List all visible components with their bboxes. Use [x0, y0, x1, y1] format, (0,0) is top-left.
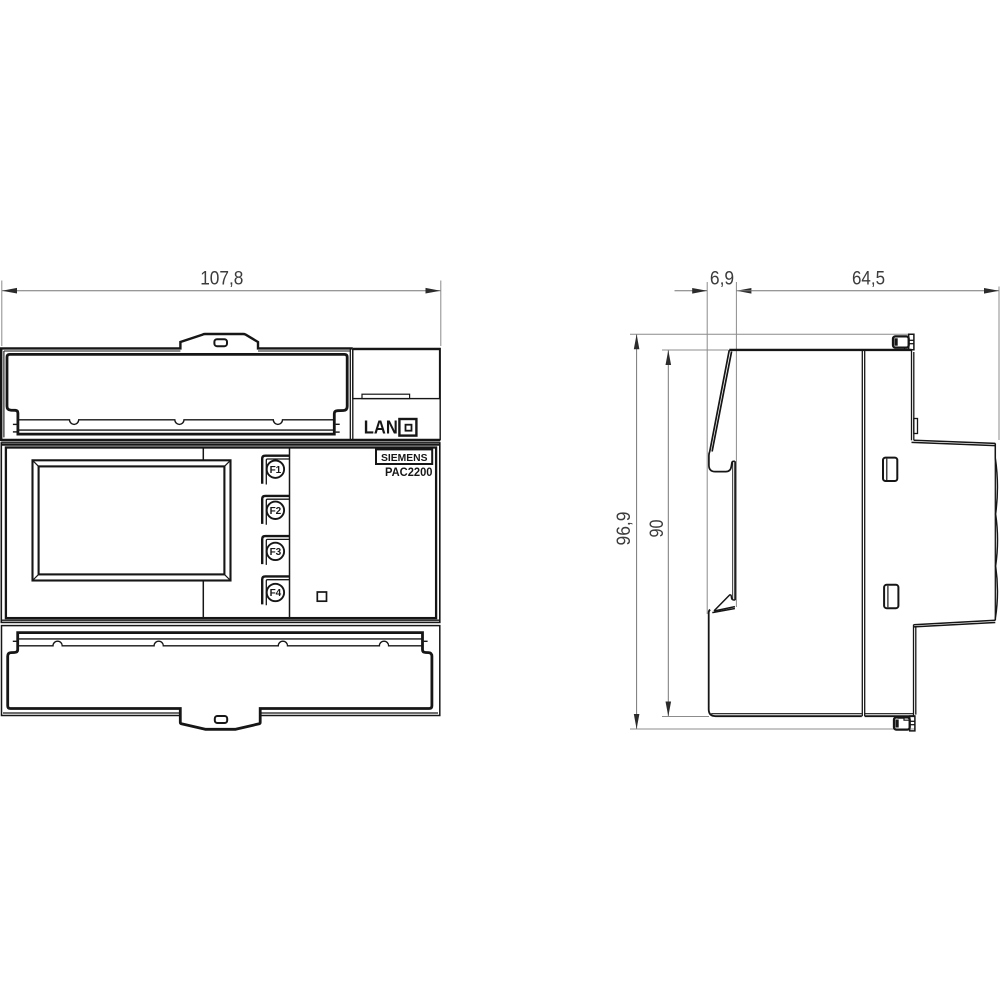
svg-text:96,9: 96,9: [614, 512, 635, 546]
svg-text:LAN: LAN: [364, 418, 398, 438]
svg-text:6,9: 6,9: [710, 269, 734, 290]
svg-text:F4: F4: [270, 588, 282, 599]
svg-text:64,5: 64,5: [852, 269, 885, 290]
svg-text:F3: F3: [270, 547, 282, 558]
svg-text:90: 90: [647, 520, 668, 538]
svg-text:SIEMENS: SIEMENS: [381, 453, 428, 464]
svg-text:107,8: 107,8: [200, 269, 243, 290]
svg-text:F2: F2: [270, 506, 282, 517]
svg-text:PAC2200: PAC2200: [385, 465, 433, 479]
svg-text:F1: F1: [270, 465, 282, 476]
